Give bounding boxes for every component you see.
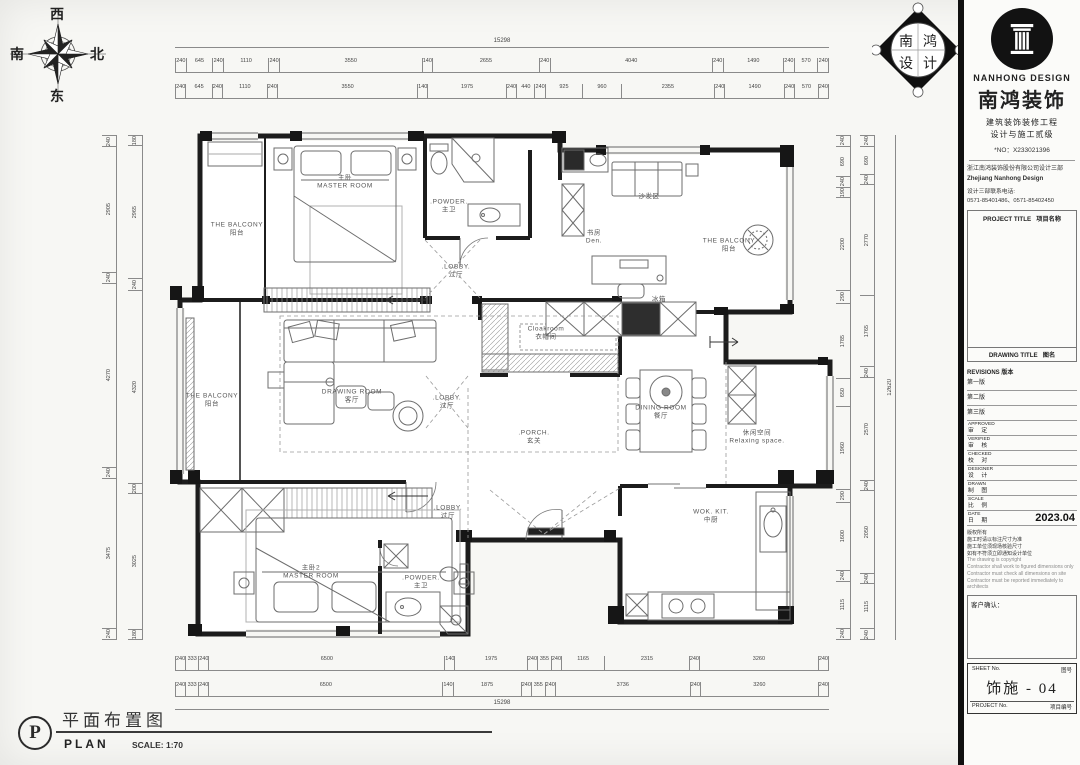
drawing-title-cn: 图名 (1043, 352, 1055, 359)
dimension-value: 140 (442, 682, 452, 696)
project-no-cn: 项目编号 (1050, 703, 1072, 711)
diamond-char-2: 鸿 (923, 33, 937, 49)
dimension-value: 2200 (836, 197, 850, 290)
company-logo (991, 8, 1053, 70)
room-label: .POWDER.主卫 (402, 575, 440, 592)
dimension-value: 240 (712, 58, 723, 72)
dept-cn: 浙江南鸿装饰股份有限公司设计三部 (967, 165, 1077, 174)
dimension-value: 1765 (860, 295, 874, 366)
dimension-value: 650 (836, 378, 850, 406)
dimension-value: 240 (534, 84, 544, 98)
company-name-cn: 南鸿装饰 (967, 84, 1077, 113)
dimension-value: 333 (185, 682, 198, 696)
revisions-list: 第一版第二版第三版 (967, 376, 1077, 421)
dimension-value: 1490 (724, 84, 783, 98)
dimension-value: 240 (527, 656, 537, 670)
dimension-col-right1: 2406902401902200290178565019602901600240… (836, 135, 851, 640)
dimension-value: 240 (836, 570, 850, 581)
note-line: 如有不符须立即通知设计单位 (967, 551, 1077, 558)
dimension-value: 240 (860, 573, 874, 584)
dimension-value: 200 (128, 483, 142, 493)
sheet-number-box: SHEET No. 图号 饰施 - 04 PROJECT No. 项目编号 (967, 663, 1077, 714)
note-line: 施工单位须现场核验尺寸 (967, 544, 1077, 551)
title-block: NANHONG DESIGN 南鸿装饰 建筑装饰装修工程 设计与施工贰级 *NO… (958, 0, 1080, 765)
dimension-value: 240 (102, 135, 116, 146)
project-title-cn: 项目名称 (1036, 216, 1061, 223)
dimension-value: 240 (689, 656, 699, 670)
note-line: 施工时请以标注尺寸为准 (967, 537, 1077, 544)
signoff-field-drawn: DRAWN制 图 (967, 481, 1077, 496)
plan-scale: SCALE: 1:70 (132, 740, 183, 750)
dimension-value: 190 (836, 187, 850, 197)
drawing-title-en: DRAWING TITLE (989, 352, 1038, 359)
plan-title-cn: 平面布置图 (62, 706, 167, 731)
dimension-value: 1115 (860, 583, 874, 628)
company-name-en: NANHONG DESIGN (967, 73, 1077, 83)
room-label: .PORCH.玄关 (518, 430, 549, 447)
dimension-row-top1: 2406452401110240355014026552404040240149… (175, 58, 829, 73)
dimension-value: 570 (794, 58, 818, 72)
compass-east-label: 东 (50, 86, 64, 106)
divider (969, 160, 1075, 161)
compass-rose: 西 北 南 东 (10, 4, 106, 114)
client-confirm-box: 客户确认： (967, 595, 1077, 659)
dimension-value: 570 (794, 84, 817, 98)
signoff-field-scale: SCALE比 例 (967, 496, 1077, 511)
dimension-value: 140 (422, 58, 432, 72)
sheet-no-cn: 图号 (1061, 666, 1072, 674)
room-label: 休闲空间Relaxing space. (729, 430, 784, 447)
dimension-value: 1110 (222, 84, 267, 98)
room-label: 主卧2MASTER ROOM (283, 565, 339, 582)
dimension-value: 240 (714, 84, 724, 98)
dimension-value: 240 (198, 682, 208, 696)
diamond-char-1: 南 (899, 33, 913, 49)
room-label: WOK. KIT.中厨 (693, 509, 729, 526)
dimension-value: 240 (860, 480, 874, 491)
dimension-value: 180 (128, 629, 142, 640)
dimension-value: 240 (102, 628, 116, 640)
dimension-value: 1960 (836, 406, 850, 489)
project-no-label: PROJECT No. (972, 703, 1008, 711)
dimension-value: 240 (175, 656, 185, 670)
note-line: Contractor must check all dimensions on … (967, 571, 1077, 578)
column-icon (1002, 19, 1042, 59)
room-label: THE BALCONY阳台 (186, 393, 238, 410)
diamond-logo: 南 鸿 设 计 (872, 2, 964, 98)
dimension-value: 240 (817, 58, 829, 72)
cert-number: *NO：X233021396 (967, 144, 1077, 154)
dimension-col-left2: 180296524043202003025180 (128, 135, 143, 640)
room-label: THE BALCONY阳台 (211, 222, 263, 239)
dimension-value: 1875 (453, 682, 521, 696)
signoff-field-approved: APPROVED审 定 (967, 421, 1077, 436)
dimension-row-top2: 2406452401110240355014019752404402409259… (175, 84, 829, 99)
dimension-value: 240 (860, 135, 874, 146)
dimension-value: 3260 (700, 682, 818, 696)
dimension-value: 240 (102, 272, 116, 283)
room-label: 冰箱 (652, 296, 666, 304)
sheet-no-label: SHEET No. (972, 666, 1000, 674)
dimension-value: 240 (198, 656, 208, 670)
dimension-value: 960 (582, 84, 621, 98)
plan-title-en: PLAN (64, 737, 109, 751)
room-label: .LOBBY.过厅 (434, 505, 463, 522)
dimension-value: 240 (783, 58, 794, 72)
dimension-value: 2905 (102, 146, 116, 271)
dimension-value: 240 (506, 84, 516, 98)
dimension-value: 333 (185, 656, 198, 670)
dimension-value: 240 (128, 278, 142, 290)
dimension-value: 4270 (102, 283, 116, 467)
note-line: Contractor must be reported immediately … (967, 578, 1077, 592)
dimension-value: 2355 (621, 84, 714, 98)
dimension-value: 2570 (860, 377, 874, 480)
signoff-field-date: DATE日 期2023.04 (967, 511, 1077, 526)
dimension-col-right2: 2406902402770176524025702402050240111524… (860, 135, 875, 640)
dimension-value: 240 (836, 176, 850, 187)
dimension-value: 240 (545, 682, 555, 696)
compass-north-label: 北 (90, 44, 104, 64)
dimension-value: 355 (531, 682, 545, 696)
dimension-value: 290 (836, 489, 850, 502)
dimension-value: 240 (690, 682, 700, 696)
dimension-value: 240 (818, 682, 829, 696)
dimension-value: 3736 (555, 682, 690, 696)
floor-plan-drawing (150, 120, 870, 660)
dimension-value: 240 (267, 84, 277, 98)
dimension-value: 4040 (550, 58, 712, 72)
project-title-box: PROJECT TITLE 项目名称 DRAWING TITLE 图名 (967, 210, 1077, 362)
dim-total-bottom: 15298 (175, 700, 829, 710)
dimension-value: 3550 (279, 58, 422, 72)
dimension-value: 240 (836, 135, 850, 146)
dimension-value: 240 (818, 656, 829, 670)
dim-total-right: 12620 (884, 135, 896, 640)
dimension-col-left1: 240290524042702403475240 (102, 135, 117, 640)
dimension-value: 240 (818, 84, 829, 98)
dimension-value: 1165 (561, 656, 604, 670)
compass-south-label: 南 (10, 44, 24, 64)
dimension-value: 240 (860, 366, 874, 377)
dimension-row-bottom2: 2403332406500140187524035524037362403260… (175, 682, 829, 697)
room-label: THE BALCONY阳台 (703, 238, 755, 255)
revisions-label: REVISIONS 版本 (967, 367, 1077, 376)
dimension-value: 240 (784, 84, 794, 98)
diamond-char-4: 计 (923, 55, 937, 71)
room-label: 书房Den. (586, 230, 602, 247)
dim-total-top: 15298 (175, 38, 829, 48)
dimension-value: 240 (521, 682, 531, 696)
caption-rule (56, 731, 492, 733)
dimension-value: 240 (175, 682, 185, 696)
dimension-value: 240 (175, 58, 186, 72)
client-confirm-label: 客户确认： (971, 602, 1004, 609)
dimension-value: 240 (212, 58, 223, 72)
compass-west-label: 西 (50, 4, 64, 24)
diamond-char-3: 设 (899, 55, 913, 71)
dimension-value: 2770 (860, 184, 874, 295)
dimension-value: 690 (860, 146, 874, 174)
room-label: .LOBBY.过厅 (442, 264, 471, 281)
dimension-value: 355 (537, 656, 551, 670)
dimension-value: 3475 (102, 478, 116, 628)
room-label: Cloakroom衣帽间 (528, 326, 565, 343)
note-line: Contractor shall work to figured dimensi… (967, 564, 1077, 571)
dimension-value: 240 (175, 84, 185, 98)
dimension-value: 1490 (723, 58, 784, 72)
dimension-value: 440 (516, 84, 534, 98)
dimension-value: 6500 (208, 656, 444, 670)
phone-label: 设计三部联系电话: (967, 188, 1077, 197)
dimension-value: 3260 (699, 656, 818, 670)
notes-block: 版权所有施工时请以标注尺寸为准施工单位须现场核验尺寸如有不符须立即通知设计单位T… (967, 530, 1077, 591)
dimension-value: 140 (444, 656, 454, 670)
dimension-value: 240 (551, 656, 561, 670)
dimension-row-bottom1: 2403332406500140197524035524011652315240… (175, 656, 829, 671)
dimension-value: 240 (268, 58, 279, 72)
cert-line-2: 设计与施工贰级 (967, 129, 1077, 141)
signoff-field-verified: VERIFIED审 核 (967, 436, 1077, 451)
dimension-value: 240 (212, 84, 222, 98)
revision-row: 第一版 (967, 376, 1077, 391)
cert-line-1: 建筑装饰装修工程 (967, 117, 1077, 129)
dimension-value: 1975 (427, 84, 505, 98)
dimension-value: 645 (186, 58, 213, 72)
room-label: .LOBBY.过厅 (433, 395, 462, 412)
project-title-en: PROJECT TITLE (983, 216, 1031, 223)
signoff-field-checked: CHECKED校 对 (967, 451, 1077, 466)
dimension-value: 2655 (432, 58, 539, 72)
dimension-value: 1975 (454, 656, 526, 670)
dimension-value: 290 (836, 290, 850, 303)
dimension-value: 240 (539, 58, 550, 72)
phone-numbers: 0571-85401486、0571-85402450 (967, 197, 1077, 206)
room-label: DRAWING ROOM客厅 (322, 389, 382, 406)
revision-row: 第二版 (967, 391, 1077, 406)
date-value: 2023.04 (1035, 512, 1075, 524)
dimension-value: 240 (836, 628, 850, 640)
dept-en: Zhejiang Nanhong Design (967, 175, 1043, 182)
dimension-value: 180 (128, 135, 142, 145)
sheet-number-value: 饰施 - 04 (970, 675, 1074, 701)
plan-symbol-circle: P (18, 716, 52, 750)
dimension-value: 2050 (860, 490, 874, 572)
signoff-field-designer: DESIGNER设 计 (967, 466, 1077, 481)
dimension-value: 6500 (208, 682, 442, 696)
dimension-value: 2315 (604, 656, 689, 670)
dimension-value: 1600 (836, 502, 850, 570)
room-label: .POWDER.主卫 (430, 199, 468, 216)
dimension-value: 690 (836, 146, 850, 176)
signoff-fields: APPROVED审 定VERIFIED审 核CHECKED校 对DESIGNER… (967, 421, 1077, 526)
dimension-value: 2965 (128, 145, 142, 278)
room-label: 沙发区 (638, 193, 659, 201)
dimension-value: 240 (860, 174, 874, 185)
dimension-value: 1115 (836, 581, 850, 628)
room-label: 主卧MASTER ROOM (317, 175, 373, 192)
dimension-value: 1785 (836, 303, 850, 378)
note-line: The drawing is copyright (967, 557, 1077, 564)
drawing-sheet: 西 北 南 东 (0, 0, 1080, 765)
dimension-value: 240 (102, 467, 116, 478)
dimension-value: 645 (185, 84, 211, 98)
dimension-value: 240 (860, 628, 874, 640)
dimension-value: 3025 (128, 493, 142, 629)
revision-row: 第三版 (967, 406, 1077, 421)
dimension-value: 925 (545, 84, 582, 98)
dimension-value: 1110 (223, 58, 268, 72)
plan-symbol-letter: P (29, 722, 41, 744)
room-label: DINING ROOM餐厅 (635, 405, 686, 422)
dimension-value: 3550 (277, 84, 417, 98)
dimension-value: 140 (417, 84, 427, 98)
dimension-value: 4320 (128, 290, 142, 483)
